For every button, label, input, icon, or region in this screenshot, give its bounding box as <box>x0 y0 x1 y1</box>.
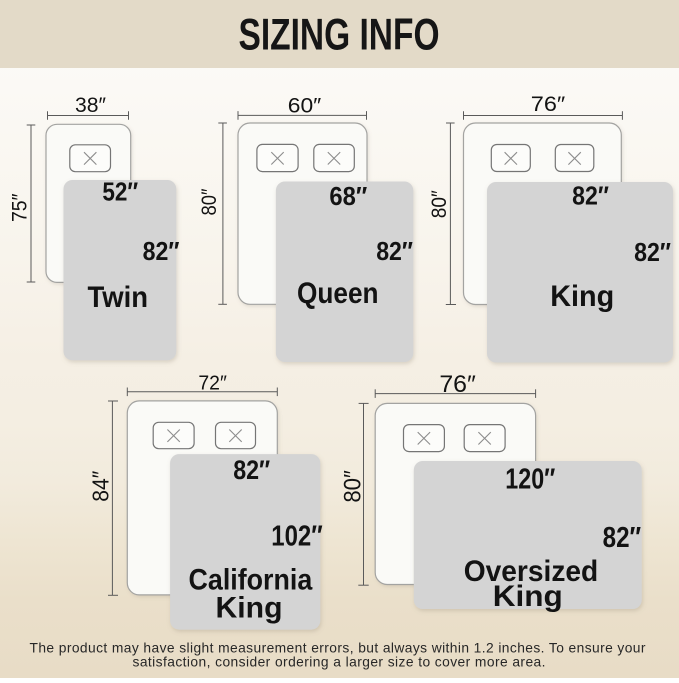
svg-text:82″: 82″ <box>143 236 180 266</box>
svg-text:60″: 60″ <box>288 95 322 118</box>
svg-text:75″: 75″ <box>9 193 32 222</box>
svg-text:52″: 52″ <box>102 176 138 206</box>
svg-text:80″: 80″ <box>198 188 221 215</box>
svg-text:King: King <box>493 580 563 613</box>
svg-text:82″: 82″ <box>603 522 642 554</box>
svg-text:76″: 76″ <box>439 371 476 398</box>
svg-text:SIZING INFO: SIZING INFO <box>239 11 440 60</box>
svg-text:The product may have slight me: The product may have slight measurement … <box>30 640 646 655</box>
svg-text:Queen: Queen <box>297 277 379 310</box>
svg-text:84″: 84″ <box>87 471 113 502</box>
svg-text:80″: 80″ <box>428 190 451 219</box>
svg-text:102″: 102″ <box>271 520 323 552</box>
svg-text:82″: 82″ <box>233 455 270 485</box>
svg-text:76″: 76″ <box>531 93 566 116</box>
svg-text:80″: 80″ <box>339 470 366 503</box>
svg-text:120″: 120″ <box>505 464 555 496</box>
svg-text:82″: 82″ <box>376 236 413 266</box>
svg-text:38″: 38″ <box>75 94 107 117</box>
svg-text:68″: 68″ <box>329 181 367 211</box>
svg-text:King: King <box>550 280 614 313</box>
svg-text:82″: 82″ <box>572 180 609 210</box>
svg-text:Twin: Twin <box>88 281 149 314</box>
svg-text:satisfaction, consider orderin: satisfaction, consider ordering a larger… <box>133 654 546 669</box>
svg-text:82″: 82″ <box>634 237 671 267</box>
svg-text:72″: 72″ <box>198 373 227 395</box>
svg-text:King: King <box>216 592 283 625</box>
